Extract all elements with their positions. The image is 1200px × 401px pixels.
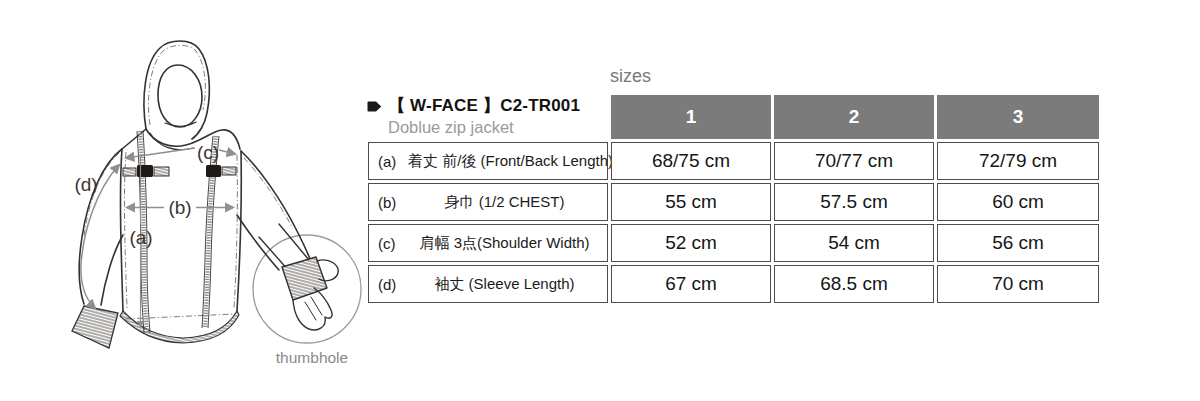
jacket-outline: [79, 41, 310, 311]
value-b-size2: 57.5 cm: [774, 183, 934, 221]
value-a-size2: 70/77 cm: [774, 142, 934, 180]
row-key-b: (b): [378, 194, 408, 211]
row-name-d: 袖丈 (Sleeve Length): [408, 275, 601, 294]
row-label-b: (b) 身巾 (1/2 CHEST): [368, 183, 608, 221]
row-key-c: (c): [378, 235, 408, 252]
size-column-header-2: 2: [774, 95, 934, 139]
value-d-size2: 68.5 cm: [774, 265, 934, 303]
size-column-header-1: 1: [611, 95, 771, 139]
jacket-diagram: (a) (b) (c) (d) thumbhole: [0, 0, 380, 401]
value-d-size1: 67 cm: [611, 265, 771, 303]
thumbhole-inset: [259, 224, 338, 330]
value-a-size1: 68/75 cm: [611, 142, 771, 180]
left-cuff: [72, 306, 118, 348]
row-key-d: (d): [378, 276, 408, 293]
value-b-size3: 60 cm: [937, 183, 1099, 221]
row-label-c: (c) 肩幅 3点(Shoulder Width): [368, 224, 608, 262]
value-d-size3: 70 cm: [937, 265, 1099, 303]
value-b-size1: 55 cm: [611, 183, 771, 221]
diagram-label-d: (d): [74, 174, 97, 195]
size-chart-page: (a) (b) (c) (d) thumbhole 【 W-FACE 】C2-T…: [0, 0, 1200, 401]
stitch-lines: [84, 45, 292, 319]
sizes-heading: sizes: [610, 66, 651, 87]
row-name-c: 肩幅 3点(Shoulder Width): [408, 234, 601, 253]
size-table: 1 2 3 (a) 着丈 前/後 (Front/Back Length) 68/…: [368, 95, 1099, 303]
row-key-a: (a): [378, 153, 408, 170]
value-c-size3: 56 cm: [937, 224, 1099, 262]
row-label-a: (a) 着丈 前/後 (Front/Back Length): [368, 142, 608, 180]
table-corner-cell: [368, 95, 608, 139]
diagram-label-a: (a): [129, 227, 152, 248]
diagram-label-b: (b): [168, 197, 191, 218]
row-name-a: 着丈 前/後 (Front/Back Length): [408, 152, 613, 171]
value-a-size3: 72/79 cm: [937, 142, 1099, 180]
thumbhole-label: thumbhole: [276, 349, 348, 366]
diagram-label-c: (c): [197, 142, 219, 163]
row-name-b: 身巾 (1/2 CHEST): [408, 193, 601, 212]
value-c-size1: 52 cm: [611, 224, 771, 262]
size-column-header-3: 3: [937, 95, 1099, 139]
value-c-size2: 54 cm: [774, 224, 934, 262]
row-label-d: (d) 袖丈 (Sleeve Length): [368, 265, 608, 303]
hem-rib-band: [120, 311, 239, 343]
